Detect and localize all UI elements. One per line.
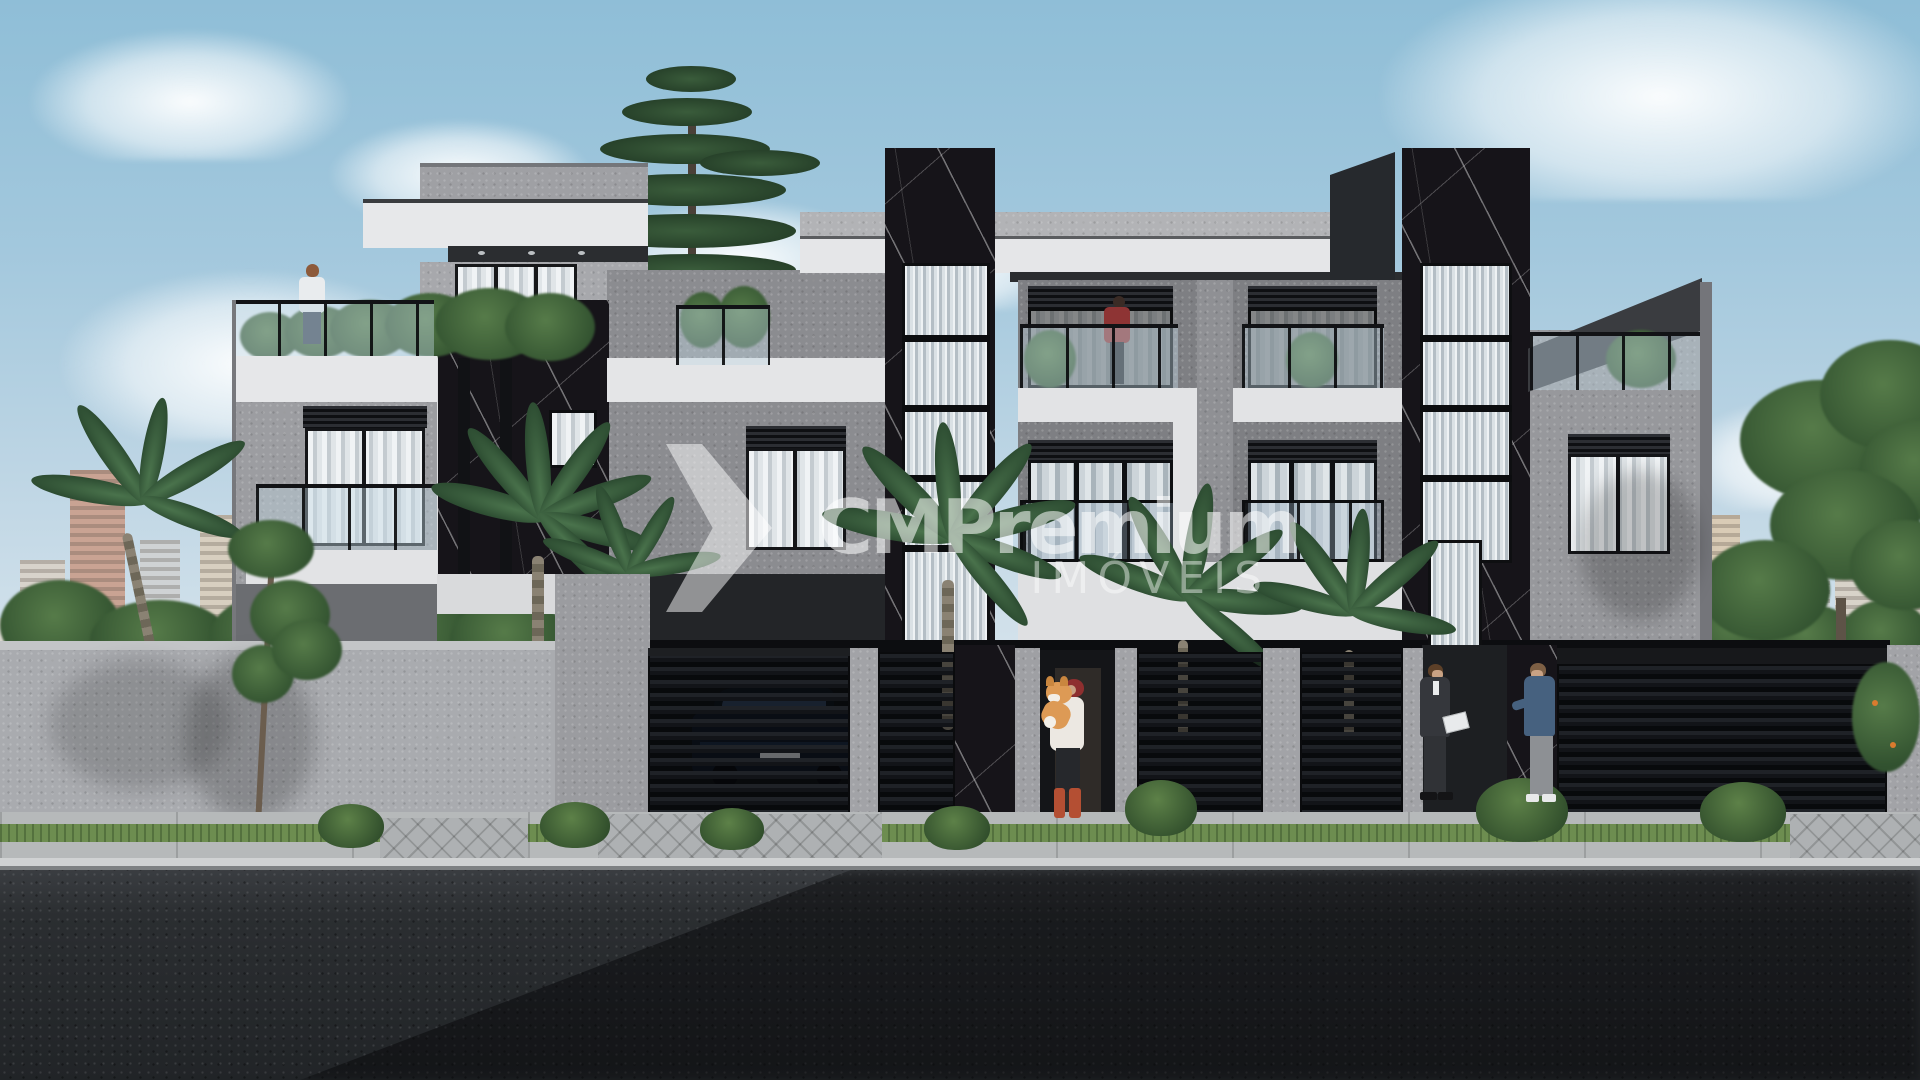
pedestrian-gate <box>878 652 955 816</box>
bush <box>924 806 990 850</box>
roller-shutter <box>1028 286 1173 308</box>
dog-ear <box>1060 676 1068 686</box>
roller-shutter <box>1568 434 1670 454</box>
boot <box>1054 788 1065 818</box>
bush <box>318 804 384 848</box>
building-corner <box>1700 282 1712 663</box>
cloud <box>30 30 350 160</box>
glass-divider <box>1420 405 1512 412</box>
bush <box>540 802 610 848</box>
pine-branch <box>646 66 736 92</box>
fence-top-bar <box>1557 648 1887 664</box>
bush <box>700 808 764 850</box>
soffit-light <box>478 251 485 255</box>
person-torso <box>1524 676 1555 736</box>
person-legs <box>1530 736 1553 796</box>
flower <box>1872 700 1878 706</box>
marble-pillar <box>955 645 1015 818</box>
roller-shutter <box>746 426 846 448</box>
balcony-glass-railing <box>1242 324 1384 390</box>
soffit-light <box>578 251 585 255</box>
window-mullion <box>793 448 797 550</box>
pine-branch <box>622 98 752 126</box>
person-head <box>306 264 319 277</box>
roller-shutter <box>1028 440 1173 460</box>
roof-slab <box>363 203 648 248</box>
glass-divider <box>902 335 990 342</box>
vine-foliage <box>272 620 342 680</box>
roof-edge <box>420 163 648 167</box>
flower <box>1890 742 1896 748</box>
architectural-render: CMPremium IMÓVEIS <box>0 0 1920 1080</box>
glass-divider <box>1420 335 1512 342</box>
foliage-shadow <box>1580 470 1700 620</box>
shirt <box>1433 681 1439 695</box>
terrace-plant <box>505 293 595 361</box>
glass-railing <box>676 305 770 365</box>
bush <box>1476 778 1568 842</box>
watermark-tagline: IMÓVEIS <box>900 553 1270 604</box>
pillar-plant <box>1852 662 1920 772</box>
glass-divider <box>902 405 990 412</box>
gate-pillar <box>850 648 878 818</box>
driveway-apron <box>1790 814 1920 860</box>
balcony-glass-railing <box>1020 324 1178 390</box>
vine-foliage <box>228 520 314 578</box>
glass-divider <box>1420 475 1512 482</box>
fascia-band <box>800 239 1332 273</box>
fluted-glass-strip <box>1420 263 1512 563</box>
person-legs <box>1424 736 1446 794</box>
facade-fin <box>458 358 470 576</box>
building-corner <box>232 300 236 646</box>
dog-ear <box>1046 676 1054 686</box>
tree-foliage <box>1700 540 1830 640</box>
driveway-gate <box>648 652 850 816</box>
shoe <box>1438 792 1453 800</box>
gate-pillar <box>1263 648 1300 818</box>
roller-shutter <box>1248 440 1377 460</box>
terrace-glass-railing <box>232 300 434 360</box>
shoe <box>1420 792 1437 800</box>
pine-branch <box>700 150 820 176</box>
soffit-light <box>528 251 535 255</box>
gate-top-rail <box>648 648 850 656</box>
bush <box>1700 782 1786 842</box>
roller-shutter <box>1248 286 1377 308</box>
gate-pillar <box>555 574 650 818</box>
dog-chest <box>1044 716 1056 728</box>
driveway-apron <box>380 818 528 860</box>
curb <box>0 858 1920 866</box>
terrace-glass-railing <box>1530 332 1702 390</box>
shoe <box>1542 794 1556 802</box>
boot <box>1069 788 1081 818</box>
roller-shutter <box>303 406 427 428</box>
terrace-slab <box>232 356 437 402</box>
bush <box>1125 780 1197 836</box>
driveway-gate <box>1300 652 1403 816</box>
person-legs <box>1056 748 1080 792</box>
shoe <box>1526 794 1539 802</box>
gate-pillar <box>1015 648 1040 818</box>
